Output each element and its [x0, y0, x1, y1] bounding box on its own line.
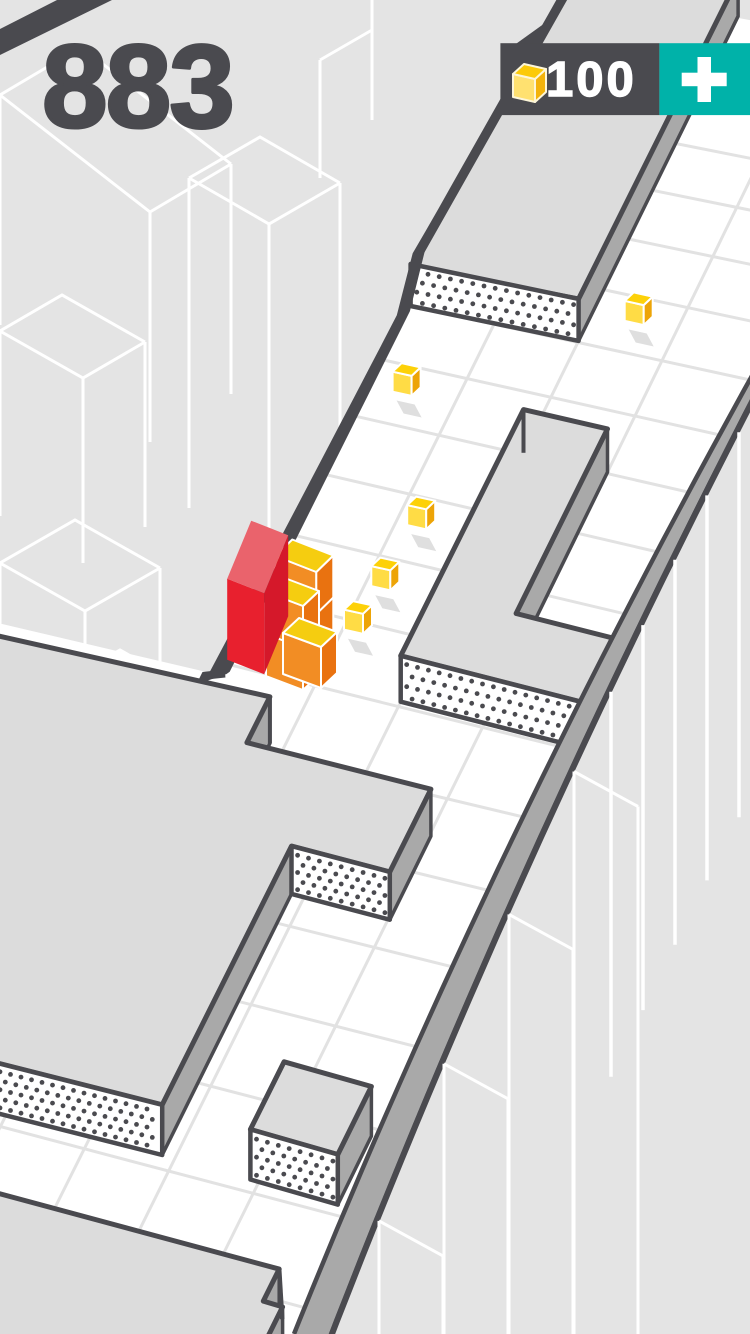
svg-text:100: 100 [546, 53, 637, 107]
svg-text:883: 883 [42, 21, 233, 153]
